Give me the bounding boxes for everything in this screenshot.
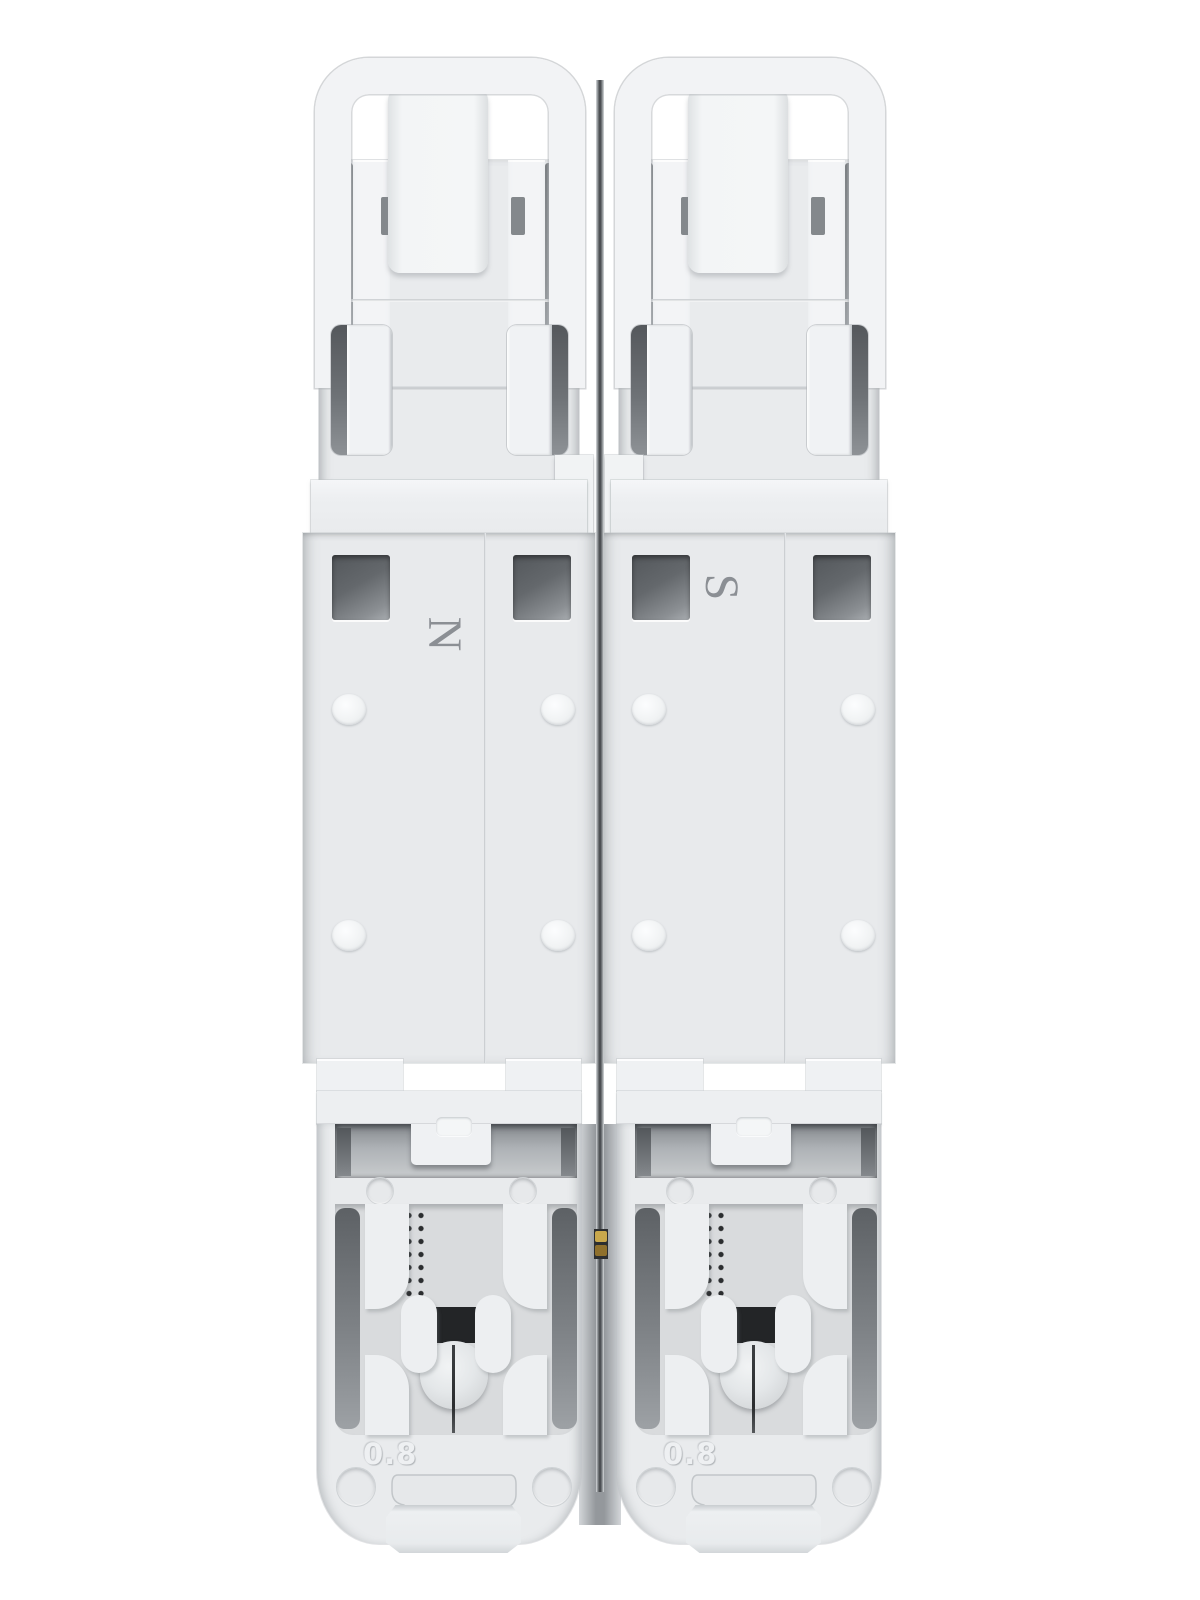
- din-shoulder-left: [617, 1059, 703, 1091]
- breaker-module-s: S: [603, 55, 895, 1560]
- screw-slot: [452, 1345, 455, 1433]
- side-cutout-left: [331, 325, 392, 455]
- clamp-slot-right: [852, 1208, 877, 1429]
- rivet: [541, 694, 575, 725]
- pole-label-n: N: [415, 604, 475, 664]
- mount-foot: [686, 1505, 821, 1553]
- brass-pin-bottom: [595, 1245, 607, 1256]
- mount-hole-right: [532, 1467, 572, 1507]
- clamp-arm: [775, 1295, 811, 1373]
- terminal-window-left: [332, 555, 390, 620]
- cutout-bar: [347, 325, 392, 455]
- rivet-hole-left: [666, 1177, 694, 1205]
- clamp-slot-right: [552, 1208, 577, 1429]
- cutout-bar: [507, 325, 552, 455]
- clamp-slot-left: [635, 1208, 660, 1429]
- rivet: [632, 694, 666, 725]
- side-cutout-right: [507, 325, 568, 455]
- side-cutout-right: [807, 325, 868, 455]
- gauge-label: 0.8: [363, 1437, 427, 1471]
- product-photo: N: [0, 0, 1200, 1600]
- rivet: [632, 920, 666, 951]
- clamp-arm: [365, 1204, 409, 1309]
- clamp-arm: [803, 1204, 847, 1309]
- clamp-arm: [503, 1204, 547, 1309]
- din-frame-slot-left: [337, 1128, 351, 1176]
- screw-slot: [752, 1345, 755, 1433]
- clamp-slot-left: [335, 1208, 360, 1429]
- clamp-arm: [803, 1355, 847, 1435]
- din-shoulder-left: [317, 1059, 403, 1091]
- cutout-slot: [631, 325, 647, 455]
- din-shoulder-right: [506, 1059, 581, 1091]
- clamp-arm: [475, 1295, 511, 1373]
- din-frame-indent: [436, 1117, 472, 1136]
- cutout-bar: [647, 325, 692, 455]
- din-frame-slot-right: [561, 1128, 575, 1176]
- rivet: [841, 920, 875, 951]
- clamp-arm: [701, 1295, 737, 1373]
- breaker-module-n: N: [303, 55, 595, 1560]
- brass-pin: [594, 1229, 608, 1259]
- clamp-arm: [665, 1204, 709, 1309]
- rivet: [841, 694, 875, 725]
- rivet: [332, 920, 366, 951]
- mount-hole-left: [336, 1467, 376, 1507]
- din-frame-indent: [736, 1117, 772, 1136]
- din-frame-slot-right: [861, 1128, 875, 1176]
- mount-foot: [386, 1505, 521, 1553]
- step-ledge: [611, 480, 887, 533]
- din-shoulder-right: [806, 1059, 881, 1091]
- side-cutout-left: [631, 325, 692, 455]
- cutout-slot: [852, 325, 868, 455]
- cutout-slot: [552, 325, 568, 455]
- rivet: [541, 920, 575, 951]
- rivet-hole-right: [509, 1177, 537, 1205]
- module-seam: [596, 80, 604, 1492]
- rivet-hole-left: [366, 1177, 394, 1205]
- mount-hole-left: [636, 1467, 676, 1507]
- panel-seam: [484, 533, 486, 1063]
- rivet-hole-right: [809, 1177, 837, 1205]
- terminal-window-right: [813, 555, 871, 620]
- rivet: [332, 694, 366, 725]
- step-ledge: [311, 480, 587, 533]
- gauge-label: 0.8: [663, 1437, 727, 1471]
- clamp-arm: [401, 1295, 437, 1373]
- mount-hole-right: [832, 1467, 872, 1507]
- din-frame-slot-left: [637, 1128, 651, 1176]
- panel-seam: [784, 533, 786, 1063]
- terminal-window-left: [632, 555, 690, 620]
- circuit-breaker-rear: N: [303, 55, 897, 1560]
- terminal-window-right: [513, 555, 571, 620]
- brass-pin-top: [595, 1231, 607, 1242]
- cutout-slot: [331, 325, 347, 455]
- cutout-bar: [807, 325, 852, 455]
- clamp-arm: [503, 1355, 547, 1435]
- pole-label-s: S: [692, 557, 752, 617]
